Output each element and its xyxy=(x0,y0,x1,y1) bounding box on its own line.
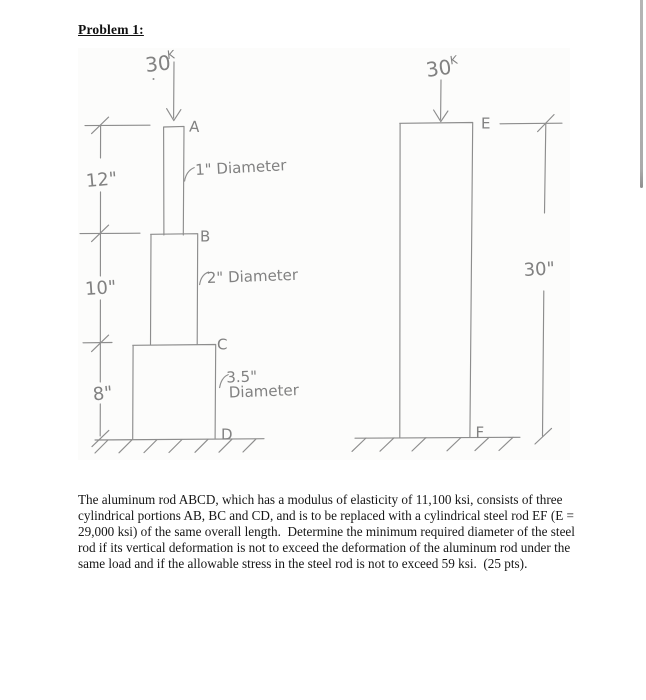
right-dim-extension-line xyxy=(500,123,562,124)
diameter-label-bc: 2" Diameter xyxy=(207,266,300,287)
point-label-f: F xyxy=(476,424,485,442)
figure-sketch: 30 K A 12" 1" Diameter B 10" 2" Diameter… xyxy=(70,44,575,464)
problem-statement-line: cylindrical portions AB, BC and CD, and … xyxy=(78,508,575,524)
problem-statement-line: The aluminum rod ABCD, which has a modul… xyxy=(78,492,575,508)
scrollbar-thumb[interactable] xyxy=(640,0,643,188)
point-label-e: E xyxy=(481,115,490,133)
dim-label-12in: 12" xyxy=(85,168,118,192)
point-label-a: A xyxy=(189,118,201,137)
problem-statement: The aluminum rod ABCD, which has a modul… xyxy=(78,492,575,572)
problem-statement-line: 29,000 ksi) of the same overall length. … xyxy=(78,524,575,540)
page-title: Problem 1: xyxy=(78,22,144,38)
diameter-label-cd-word: Diameter xyxy=(229,381,300,401)
document-page: Problem 1: 30 K A 12" xyxy=(0,0,646,700)
dim-label-10in: 10" xyxy=(84,277,117,300)
point-label-b: B xyxy=(200,228,210,246)
right-load-label: 30 xyxy=(424,55,453,82)
dim-label-30in: 30" xyxy=(523,258,555,281)
pencil-dot xyxy=(153,78,155,80)
problem-statement-line: same load and if the allowable stress in… xyxy=(78,556,575,572)
dim-label-8in: 8" xyxy=(92,383,114,406)
point-label-d: D xyxy=(221,426,233,444)
point-label-c: C xyxy=(217,336,227,354)
scan-paper-background xyxy=(78,48,570,460)
problem-statement-line: rod if its vertical deformation is not t… xyxy=(78,540,575,556)
